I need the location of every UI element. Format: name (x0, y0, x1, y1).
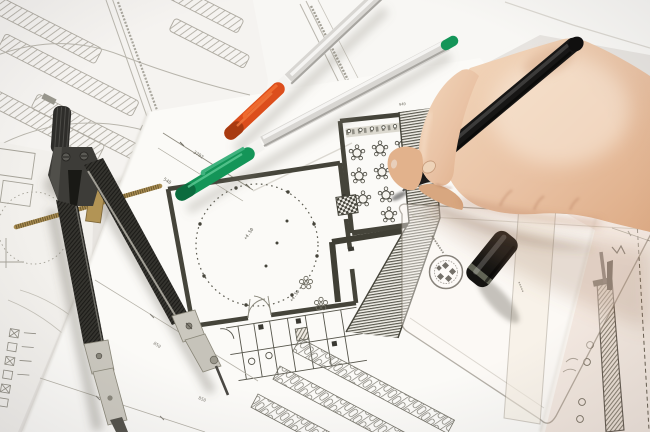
scene-canvas: 3702 540 +4.50 +4.50 (0, 0, 650, 432)
vignette-overlay (0, 0, 650, 432)
photo-architect-workspace: 3702 540 +4.50 +4.50 (0, 0, 650, 432)
